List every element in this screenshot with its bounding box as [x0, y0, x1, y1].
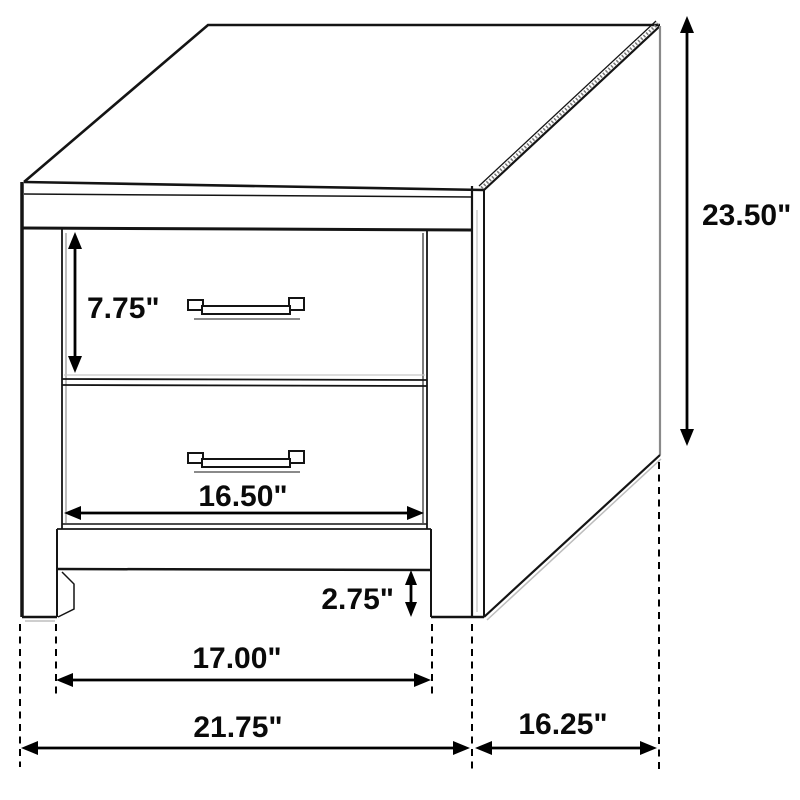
top-face-right-edge-inner: [479, 21, 656, 186]
arrow-left-icon: [56, 673, 73, 687]
dim-drawer-height: 7.75": [68, 232, 160, 373]
arrow-up-icon: [680, 16, 694, 33]
dim-label-leg-span: 17.00": [192, 642, 281, 675]
top-face-back-edges: [24, 25, 660, 182]
dim-drawer-width: 16.50": [64, 480, 424, 520]
arrow-down-icon: [680, 429, 694, 446]
dim-leg-span: 17.00": [56, 642, 431, 687]
top-face-front-edge: [24, 182, 484, 190]
dim-label-leg-height: 2.75": [321, 583, 394, 616]
handle-right-tab: [289, 451, 304, 463]
handle-left-tab: [188, 453, 203, 463]
dim-overall-width: 21.75": [21, 711, 470, 755]
drawer-divider-bottom: [62, 385, 427, 386]
dim-label-overall-width: 21.75": [193, 711, 282, 744]
top-face-edge-hatching: [482, 24, 659, 189]
drawer-1-handle: [188, 298, 304, 319]
top-face-right-edge: [484, 26, 660, 190]
dim-label-depth: 16.25": [518, 708, 607, 741]
side-panel-bottom-edge: [484, 455, 660, 617]
arrow-up-icon: [405, 570, 417, 585]
furniture-dimension-diagram: 7.75" 16.50" 2.75" 17.00" 21: [0, 0, 800, 800]
top-rail-bottom-line: [22, 228, 472, 230]
arrow-down-icon: [68, 356, 82, 373]
arrow-right-icon: [407, 506, 424, 520]
arrow-up-icon: [68, 232, 82, 249]
arrow-right-icon: [640, 741, 657, 755]
nightstand-dimension-drawing: 7.75" 16.50" 2.75" 17.00" 21: [0, 0, 800, 800]
drawer-2-handle: [188, 451, 304, 472]
handle-bar: [202, 459, 290, 467]
handle-left-tab: [188, 300, 203, 310]
arrow-left-icon: [475, 741, 492, 755]
dim-label-drawer-height: 7.75": [87, 292, 160, 325]
dim-depth: 16.25": [475, 708, 657, 755]
top-slab-bevel-line: [24, 194, 472, 197]
side-panel-bottom-shadow: [487, 459, 661, 620]
arrow-down-icon: [405, 602, 417, 617]
handle-right-tab: [289, 298, 304, 310]
front-face: [22, 182, 472, 617]
rear-left-leg: [58, 572, 74, 617]
handle-bar: [202, 306, 290, 314]
drawer-divider-top: [62, 379, 427, 380]
arrow-left-icon: [21, 741, 38, 755]
side-panel: [477, 26, 661, 620]
top-face: [24, 21, 660, 190]
dim-overall-height: 23.50": [680, 16, 791, 446]
bottom-rail-bottom-edge: [57, 569, 431, 570]
dim-label-drawer-width: 16.50": [198, 480, 287, 513]
dim-label-overall-height: 23.50": [702, 199, 791, 232]
arrow-right-icon: [414, 673, 431, 687]
dim-leg-height: 2.75": [321, 570, 417, 617]
arrow-right-icon: [453, 741, 470, 755]
